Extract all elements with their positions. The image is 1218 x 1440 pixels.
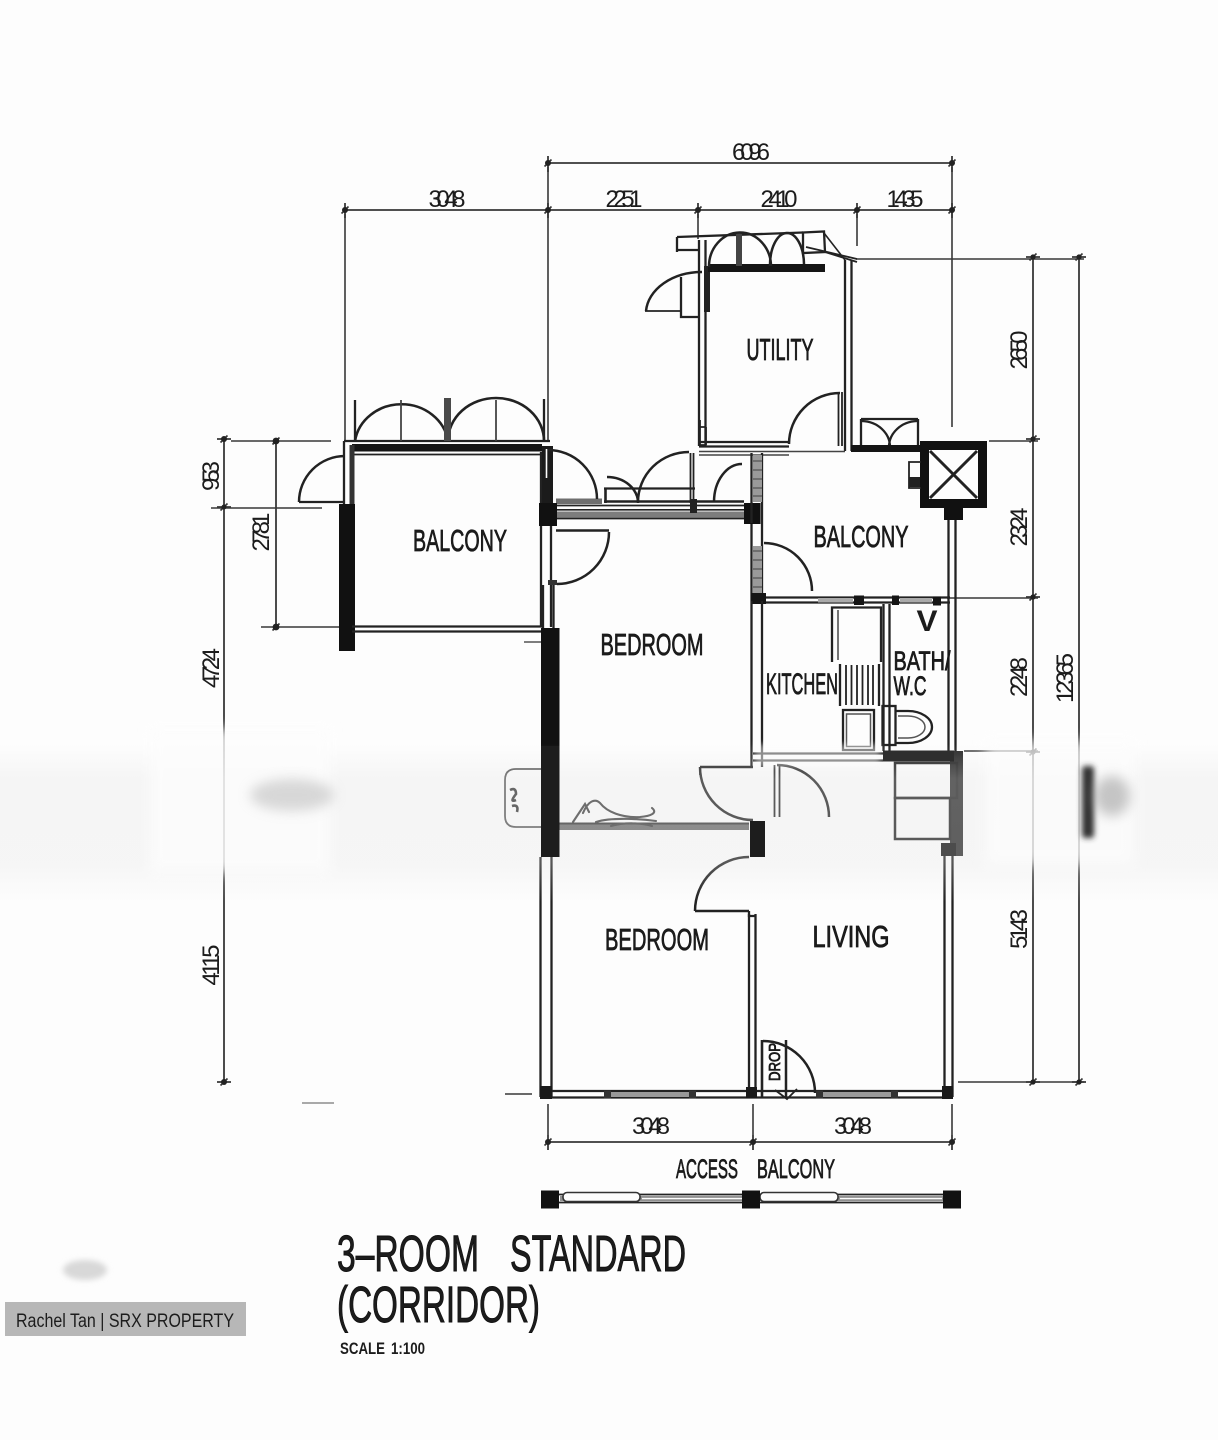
svg-text:V: V bbox=[917, 605, 938, 638]
svg-text:5143: 5143 bbox=[1006, 909, 1033, 949]
svg-text:BEDROOM: BEDROOM bbox=[601, 627, 704, 662]
svg-text:4115: 4115 bbox=[198, 945, 225, 986]
svg-text:(CORRIDOR): (CORRIDOR) bbox=[337, 1276, 540, 1333]
svg-text:DROP: DROP bbox=[767, 1043, 784, 1081]
svg-text:1435: 1435 bbox=[887, 186, 924, 213]
svg-text:KITCHEN: KITCHEN bbox=[766, 668, 838, 701]
svg-text:3048: 3048 bbox=[429, 186, 466, 213]
svg-text:LIVING: LIVING bbox=[813, 919, 890, 954]
svg-text:12365: 12365 bbox=[1052, 653, 1079, 703]
svg-text:4724: 4724 bbox=[198, 648, 225, 688]
svg-text:W.C: W.C bbox=[894, 671, 927, 701]
svg-text:2410: 2410 bbox=[761, 186, 798, 213]
svg-text:3–ROOM: 3–ROOM bbox=[337, 1225, 479, 1282]
svg-text:1:100: 1:100 bbox=[391, 1339, 425, 1358]
svg-text:2324: 2324 bbox=[1006, 508, 1033, 547]
svg-text:UTILITY: UTILITY bbox=[747, 332, 814, 367]
svg-text:3048: 3048 bbox=[632, 1113, 670, 1140]
svg-text:BEDROOM: BEDROOM bbox=[605, 922, 709, 957]
svg-text:2251: 2251 bbox=[606, 186, 643, 213]
svg-text:BALCONY: BALCONY bbox=[757, 1154, 835, 1184]
svg-text:Rachel Tan | SRX PROPERTY: Rachel Tan | SRX PROPERTY bbox=[16, 1311, 234, 1332]
svg-text:BALCONY: BALCONY bbox=[413, 523, 507, 558]
svg-text:6096: 6096 bbox=[732, 139, 770, 166]
svg-text:953: 953 bbox=[198, 461, 225, 491]
svg-text:2781: 2781 bbox=[248, 513, 275, 552]
svg-text:BALCONY: BALCONY bbox=[814, 519, 909, 554]
svg-text:3048: 3048 bbox=[834, 1113, 872, 1140]
svg-text:STANDARD: STANDARD bbox=[510, 1225, 686, 1282]
svg-text:SCALE: SCALE bbox=[340, 1339, 385, 1358]
svg-text:2650: 2650 bbox=[1006, 331, 1033, 370]
svg-text:ACCESS: ACCESS bbox=[676, 1154, 738, 1184]
svg-text:2248: 2248 bbox=[1006, 657, 1033, 697]
